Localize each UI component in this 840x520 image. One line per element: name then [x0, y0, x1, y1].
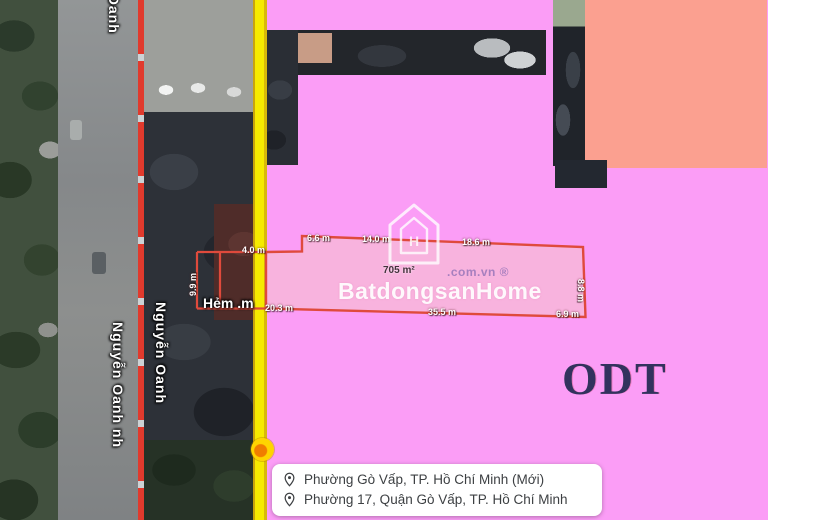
watermark-brand: BatdongsanHome	[338, 278, 542, 305]
street-label-nguyen-oanh-2: Nguyễn Oanh nh	[110, 322, 126, 448]
location-row-new: Phường Gò Vấp, TP. Hồ Chí Minh (Mới)	[282, 472, 590, 487]
measurement-label: 8.8 m	[576, 279, 586, 302]
car-blob	[70, 120, 82, 140]
map-viewport[interactable]: 4.0 m 6.6 m 14.0 m 18.6 m 20.3 m 35.5 m …	[0, 0, 840, 520]
house-logo-icon: H	[388, 203, 440, 265]
measurement-label: 4.0 m	[242, 245, 265, 255]
street-label-nguyen-oanh: Nguyễn Oanh	[153, 302, 169, 404]
measurement-label: 35.5 m	[428, 307, 456, 317]
measurement-label: 14.0 m	[362, 234, 390, 244]
location-info-box: Phường Gò Vấp, TP. Hồ Chí Minh (Mới) Phư…	[272, 464, 602, 516]
location-row-old: Phường 17, Quận Gò Vấp, TP. Hồ Chí Minh	[282, 492, 590, 507]
measurement-label: 20.3 m	[265, 303, 293, 313]
measurement-label: 6.9 m	[556, 309, 579, 319]
location-text-old: Phường 17, Quận Gò Vấp, TP. Hồ Chí Minh	[304, 492, 568, 507]
location-pin-icon	[282, 472, 297, 487]
location-pin-icon	[282, 492, 297, 507]
zone-salmon-overlay[interactable]	[557, 0, 767, 168]
measurement-label: 18.6 m	[462, 237, 490, 247]
car-blob	[92, 252, 106, 274]
street-label-oanh: Oanh	[106, 0, 122, 34]
satellite-cutout-foot	[555, 160, 607, 188]
watermark-domain: .com.vn ®	[447, 265, 509, 279]
trees-texture	[144, 440, 262, 520]
measurement-label: 6.6 m	[307, 233, 330, 243]
trees-texture	[0, 0, 58, 520]
parcel-area-label: 705 m²	[383, 265, 415, 276]
street-label-hem: Hẻm .m	[203, 295, 254, 311]
satellite-cutout-column	[262, 30, 298, 165]
satellite-cutout-strip	[553, 0, 585, 166]
location-marker[interactable]	[251, 438, 274, 461]
measurement-label: 9.9 m	[188, 273, 198, 296]
house-logo-letter: H	[409, 233, 419, 249]
location-text-new: Phường Gò Vấp, TP. Hồ Chí Minh (Mới)	[304, 472, 544, 487]
zone-odt-label: ODT	[562, 352, 668, 405]
